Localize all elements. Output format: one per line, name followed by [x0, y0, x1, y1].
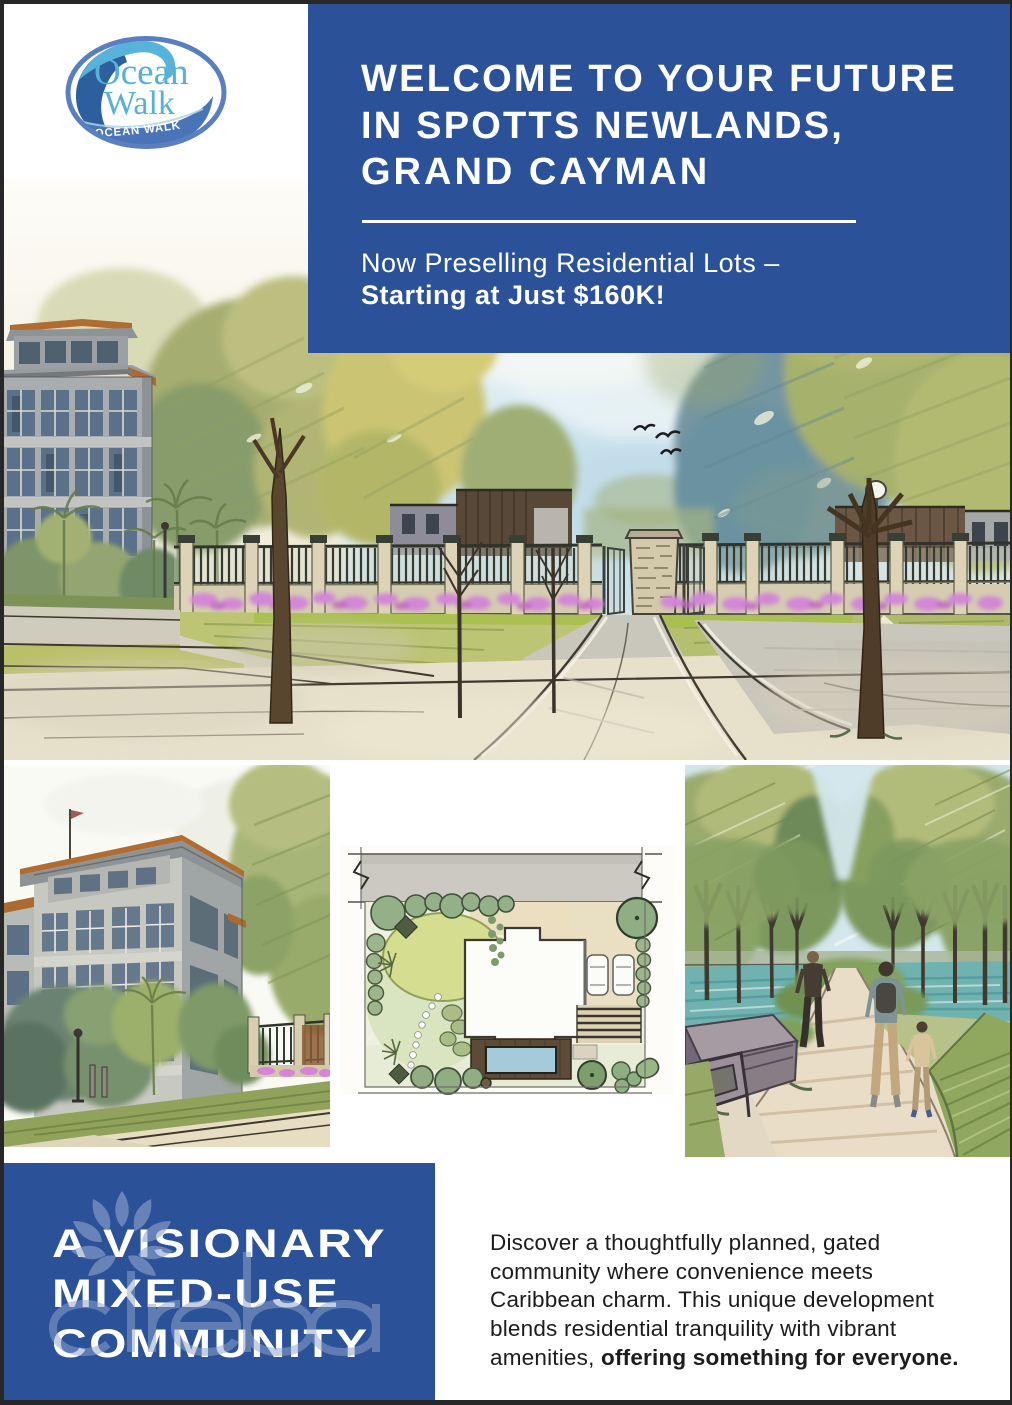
svg-text:Walk: Walk [104, 85, 175, 122]
